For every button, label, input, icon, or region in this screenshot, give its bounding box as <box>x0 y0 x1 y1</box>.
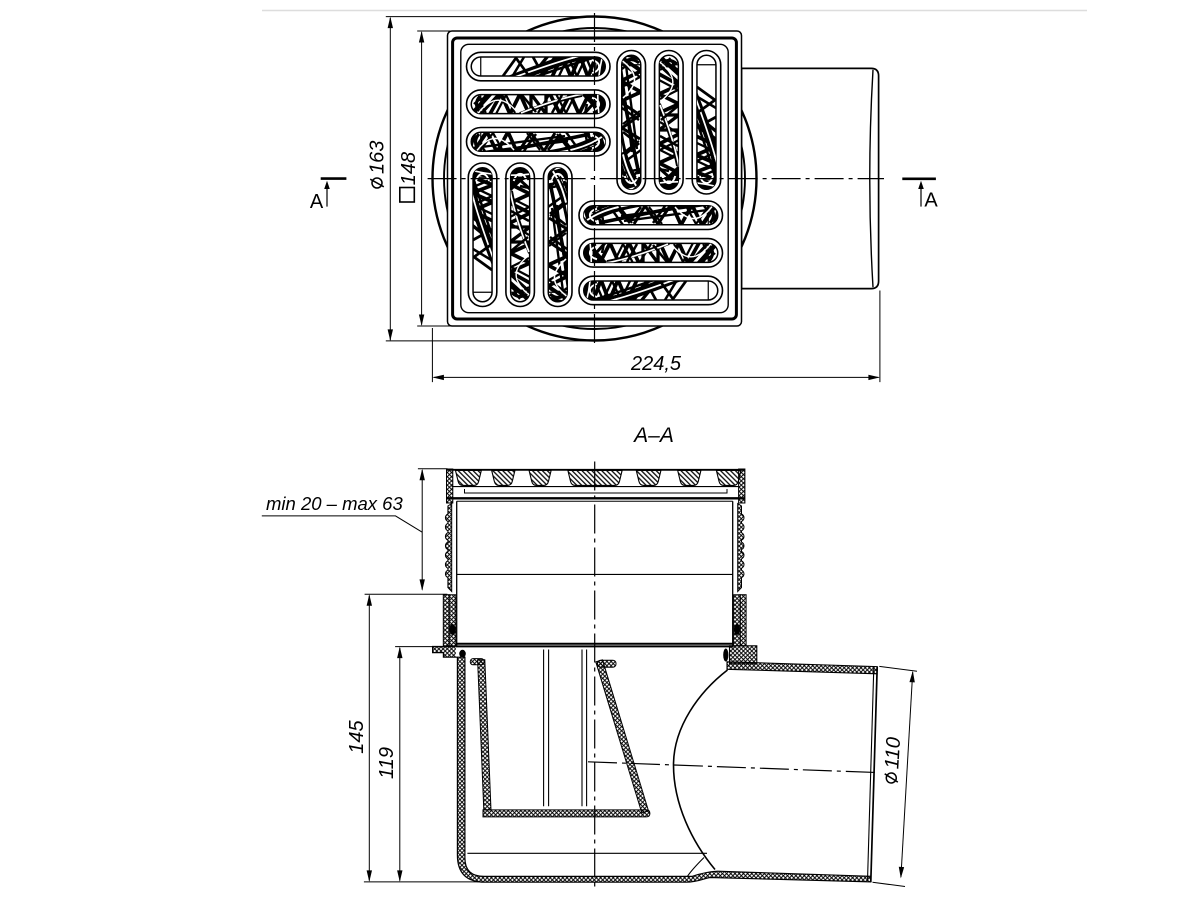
svg-text:min 20 – max 63: min 20 – max 63 <box>266 493 403 514</box>
svg-text:148: 148 <box>398 152 420 185</box>
svg-text:145: 145 <box>346 719 368 753</box>
svg-text:119: 119 <box>376 747 398 779</box>
svg-text:163: 163 <box>367 141 389 174</box>
svg-text:A: A <box>310 191 324 213</box>
svg-text:224,5: 224,5 <box>630 353 682 375</box>
svg-text:110: 110 <box>881 737 905 770</box>
svg-text:A: A <box>924 190 938 212</box>
svg-text:A–A: A–A <box>632 424 674 447</box>
